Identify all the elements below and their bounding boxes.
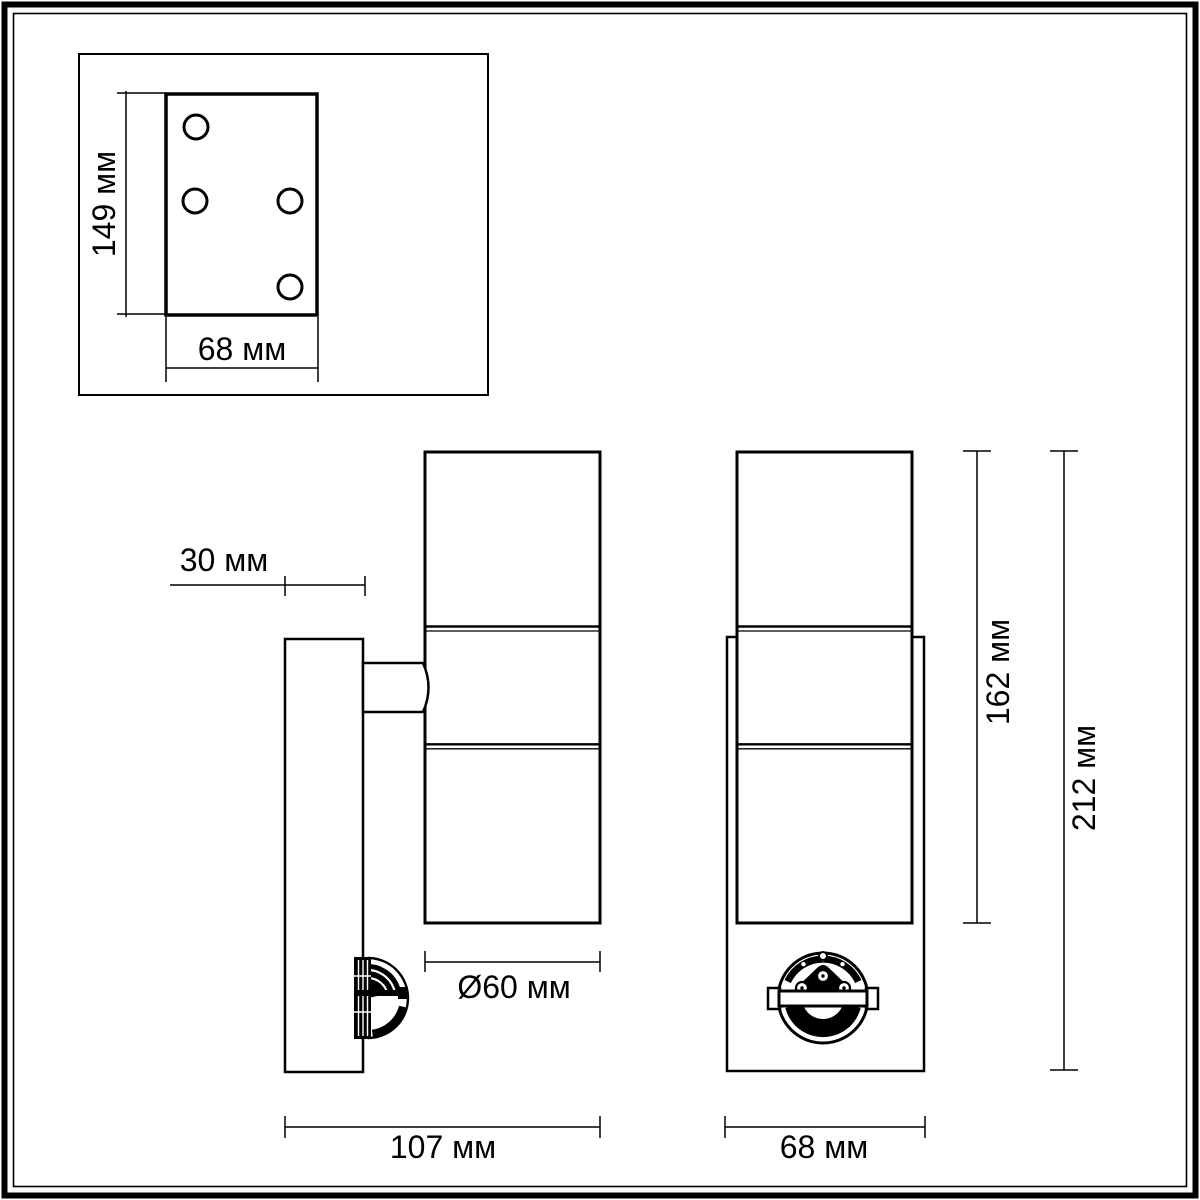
dim-label-body-diameter: Ø60 мм [457, 971, 570, 1003]
dim-label-front-width: 68 мм [780, 1131, 868, 1163]
lamp-body-front [737, 452, 912, 923]
dim-label-total-depth: 107 мм [390, 1131, 496, 1163]
dim-label-wall-offset: 30 мм [180, 544, 268, 576]
mounting-arm [363, 663, 429, 712]
mounting-hole [278, 189, 302, 213]
lamp-body-side [425, 452, 600, 923]
dim-label-total-height: 212 мм [1068, 725, 1100, 831]
mounting-hole [184, 115, 208, 139]
technical-drawing-sheet: 149 мм 68 мм 30 мм Ø60 мм 107 мм 68 мм 1… [0, 0, 1200, 1200]
dim-wall-offset-lines [170, 576, 365, 596]
mounting-hole [278, 275, 302, 299]
dim-label-plate-height: 149 мм [88, 151, 120, 257]
drawing-linework [0, 0, 1200, 1200]
front-view [725, 451, 1078, 1138]
motion-sensor-side [354, 957, 408, 1039]
dim-label-lamp-height: 162 мм [982, 619, 1014, 725]
mounting-hole [183, 189, 207, 213]
wall-plate-side [285, 639, 363, 1072]
dim-label-plate-width: 68 мм [198, 333, 286, 365]
